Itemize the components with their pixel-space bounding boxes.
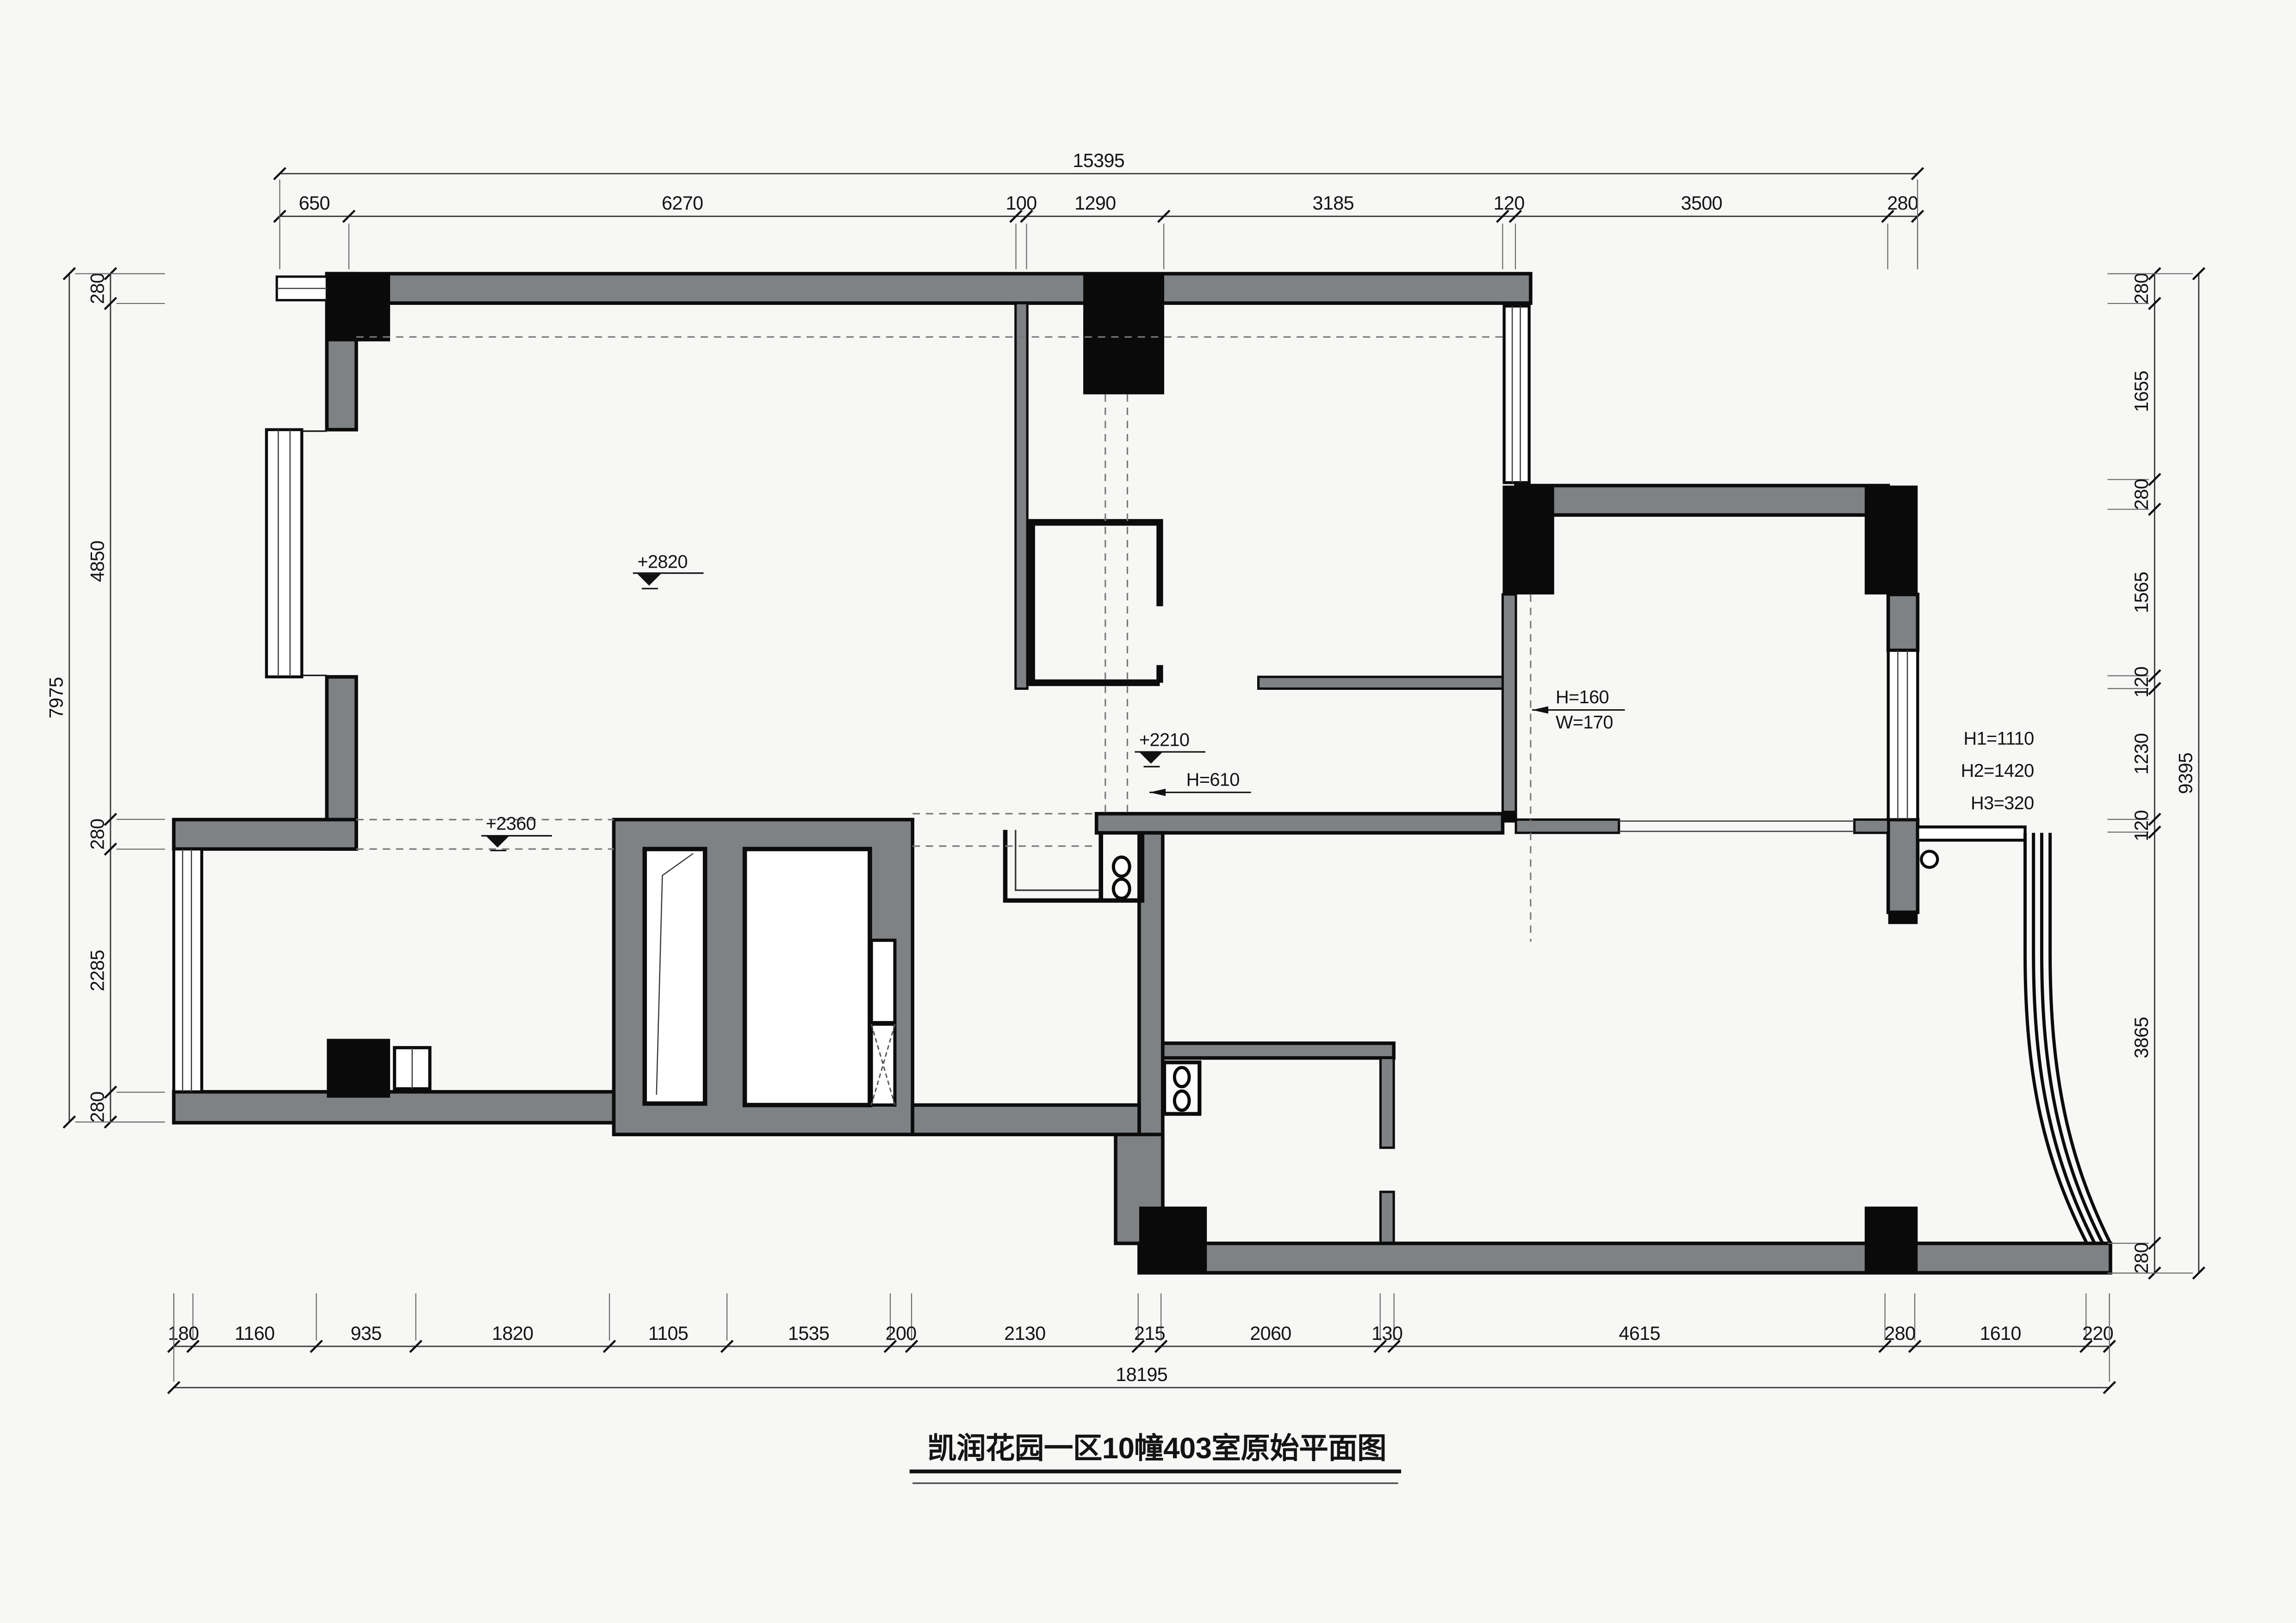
dim-label: 1535 <box>788 1323 829 1344</box>
level-triangle-icon <box>637 574 661 585</box>
beam-lines <box>356 337 1531 942</box>
elevator-shaft <box>645 849 705 1103</box>
bottom-main-wall <box>1139 1243 2110 1273</box>
dim-label: 1230 <box>2131 733 2152 774</box>
arrow-left-icon <box>1149 789 1166 796</box>
level-marker-living: +2820 <box>633 552 704 589</box>
sink-basin-icon <box>1113 857 1129 876</box>
window-h2-label: H2=1420 <box>1961 761 2034 781</box>
burner-icon <box>1174 1091 1189 1110</box>
left-room-top-wall <box>174 819 356 849</box>
dim-overall-label: 9395 <box>2175 753 2197 794</box>
curved-bay-window <box>2025 833 2110 1243</box>
dim-label: 280 <box>87 819 108 850</box>
drawing-sheet: +2820 +2210 H=610 +2360 H=160 W=170 <box>0 0 2296 1623</box>
interior-wall-v-upper <box>1381 1058 1394 1148</box>
interior-wall-v-lower <box>1381 1192 1394 1243</box>
level-triangle-icon <box>1139 752 1163 763</box>
annotations: +2820 +2210 H=610 +2360 H=160 W=170 <box>481 552 2034 851</box>
arrow-left-icon <box>1532 706 1548 714</box>
burner-icon <box>1174 1067 1189 1086</box>
floor-drain-icon <box>1921 851 1937 867</box>
dim-label: 280 <box>1884 1323 1915 1344</box>
floor-plan-svg: +2820 +2210 H=610 +2360 H=160 W=170 <box>0 0 2296 1623</box>
window-left-living <box>267 430 302 677</box>
bay-window-sill <box>1917 827 2025 840</box>
level-triangle-icon <box>486 836 509 847</box>
wall-end-cap <box>1502 811 1516 822</box>
dim-label: 3500 <box>1681 192 1722 214</box>
level-label: +2820 <box>637 552 687 572</box>
window-right-bedroom <box>1888 650 1918 820</box>
bedroom-bottom-wall <box>1259 677 1503 688</box>
dim-overall-label: 15395 <box>1073 150 1124 171</box>
window-h1-label: H1=1110 <box>1964 728 2034 749</box>
kitchen-counter-inner <box>1016 830 1101 890</box>
dim-label: 220 <box>2082 1323 2113 1344</box>
column-bottom-right <box>1865 1207 1917 1273</box>
dim-label: 3185 <box>1313 192 1354 214</box>
dim-label: 280 <box>87 273 108 304</box>
interior-wall-100 <box>1016 303 1027 688</box>
dim-label: 2060 <box>1250 1323 1291 1344</box>
dim-label: 1160 <box>235 1323 274 1344</box>
window-heights-annotation: H1=1110 H2=1420 H3=320 <box>1961 728 2034 813</box>
dim-label: 2130 <box>1004 1323 1045 1344</box>
level-marker-pass: +2210 <box>1135 730 1205 767</box>
bottom-left-wall <box>174 1092 614 1123</box>
top-wall <box>327 274 1531 304</box>
dim-overall-label: 18195 <box>1116 1364 1167 1385</box>
column-bottom-left <box>327 1039 390 1097</box>
level-label: +2360 <box>486 814 536 834</box>
flue-shaft <box>871 1024 895 1105</box>
dim-label: 215 <box>1134 1323 1165 1344</box>
dim-label: 120 <box>2131 810 2152 841</box>
dim-label: 120 <box>1494 192 1525 214</box>
core-shafts <box>645 849 895 1105</box>
dim-label: 2285 <box>87 950 108 991</box>
dim-label: 650 <box>299 192 330 214</box>
dim-label: 280 <box>87 1091 108 1122</box>
dim-label: 120 <box>2131 667 2152 698</box>
dim-label: 3865 <box>2131 1017 2152 1058</box>
dim-label: 1655 <box>2131 371 2152 412</box>
pass-height-label: H=610 <box>1186 769 1240 790</box>
window-h3-label: H3=320 <box>1971 793 2034 813</box>
corridor-bottom-wall <box>912 1105 1139 1134</box>
dim-label: 130 <box>1371 1323 1402 1344</box>
dim-label: 1610 <box>1980 1323 2021 1344</box>
dim-label: 100 <box>1006 192 1037 214</box>
title-block: 凯润花园一区10幢403室原始平面图 <box>910 1432 1401 1483</box>
dim-label: 1820 <box>492 1323 533 1344</box>
pass-height-leader: H=610 <box>1149 769 1251 796</box>
duct-niche <box>871 940 895 1022</box>
dim-label: 1565 <box>2131 572 2152 613</box>
bathroom-walls <box>1032 522 1160 683</box>
dim-label: 6270 <box>662 192 703 214</box>
niche-annotation: H=160 W=170 <box>1532 687 1625 732</box>
drawing-title: 凯润花园一区10幢403室原始平面图 <box>927 1432 1386 1465</box>
dim-label: 1290 <box>1074 192 1116 214</box>
walls <box>174 274 2110 1273</box>
dim-label: 200 <box>885 1323 916 1344</box>
dim-label: 280 <box>2131 479 2152 510</box>
dim-label: 4615 <box>1619 1323 1660 1344</box>
dim-label: 4850 <box>87 541 108 582</box>
ne-room-south-wall-b <box>1855 819 1888 833</box>
right-wall-upper <box>1888 595 1918 650</box>
bay-window-left <box>174 849 202 1092</box>
dim-label: 180 <box>168 1323 199 1344</box>
dim-label: 280 <box>1887 192 1918 214</box>
stair-landing <box>745 849 870 1105</box>
column-bottom-middle <box>1139 1207 1207 1273</box>
wall-end-cap <box>1888 912 1918 924</box>
column-ne-left <box>1502 486 1554 595</box>
dim-overall-label: 7975 <box>45 677 67 719</box>
niche-height-label: H=160 <box>1556 687 1609 707</box>
niche-width-label: W=170 <box>1556 712 1613 732</box>
ne-room-top-wall <box>1516 486 1888 515</box>
dim-label: 935 <box>351 1323 382 1344</box>
kitchen-top-wall <box>1097 814 1503 833</box>
level-marker-dining: +2360 <box>481 814 552 851</box>
column-top-left <box>327 274 390 341</box>
column-ne-right <box>1865 486 1917 595</box>
column-top-middle <box>1083 274 1164 395</box>
interior-wall-h <box>1163 1043 1394 1058</box>
window-east-notch <box>1504 306 1529 483</box>
right-wall-lower <box>1888 819 1918 912</box>
sink-basin-icon <box>1113 879 1129 898</box>
level-label: +2210 <box>1139 730 1189 750</box>
dim-label: 280 <box>2131 1243 2152 1274</box>
ne-room-left-wall <box>1502 595 1516 820</box>
dim-label: 280 <box>2131 273 2152 304</box>
floor-plan <box>174 274 2110 1273</box>
dim-label: 1105 <box>648 1323 688 1344</box>
